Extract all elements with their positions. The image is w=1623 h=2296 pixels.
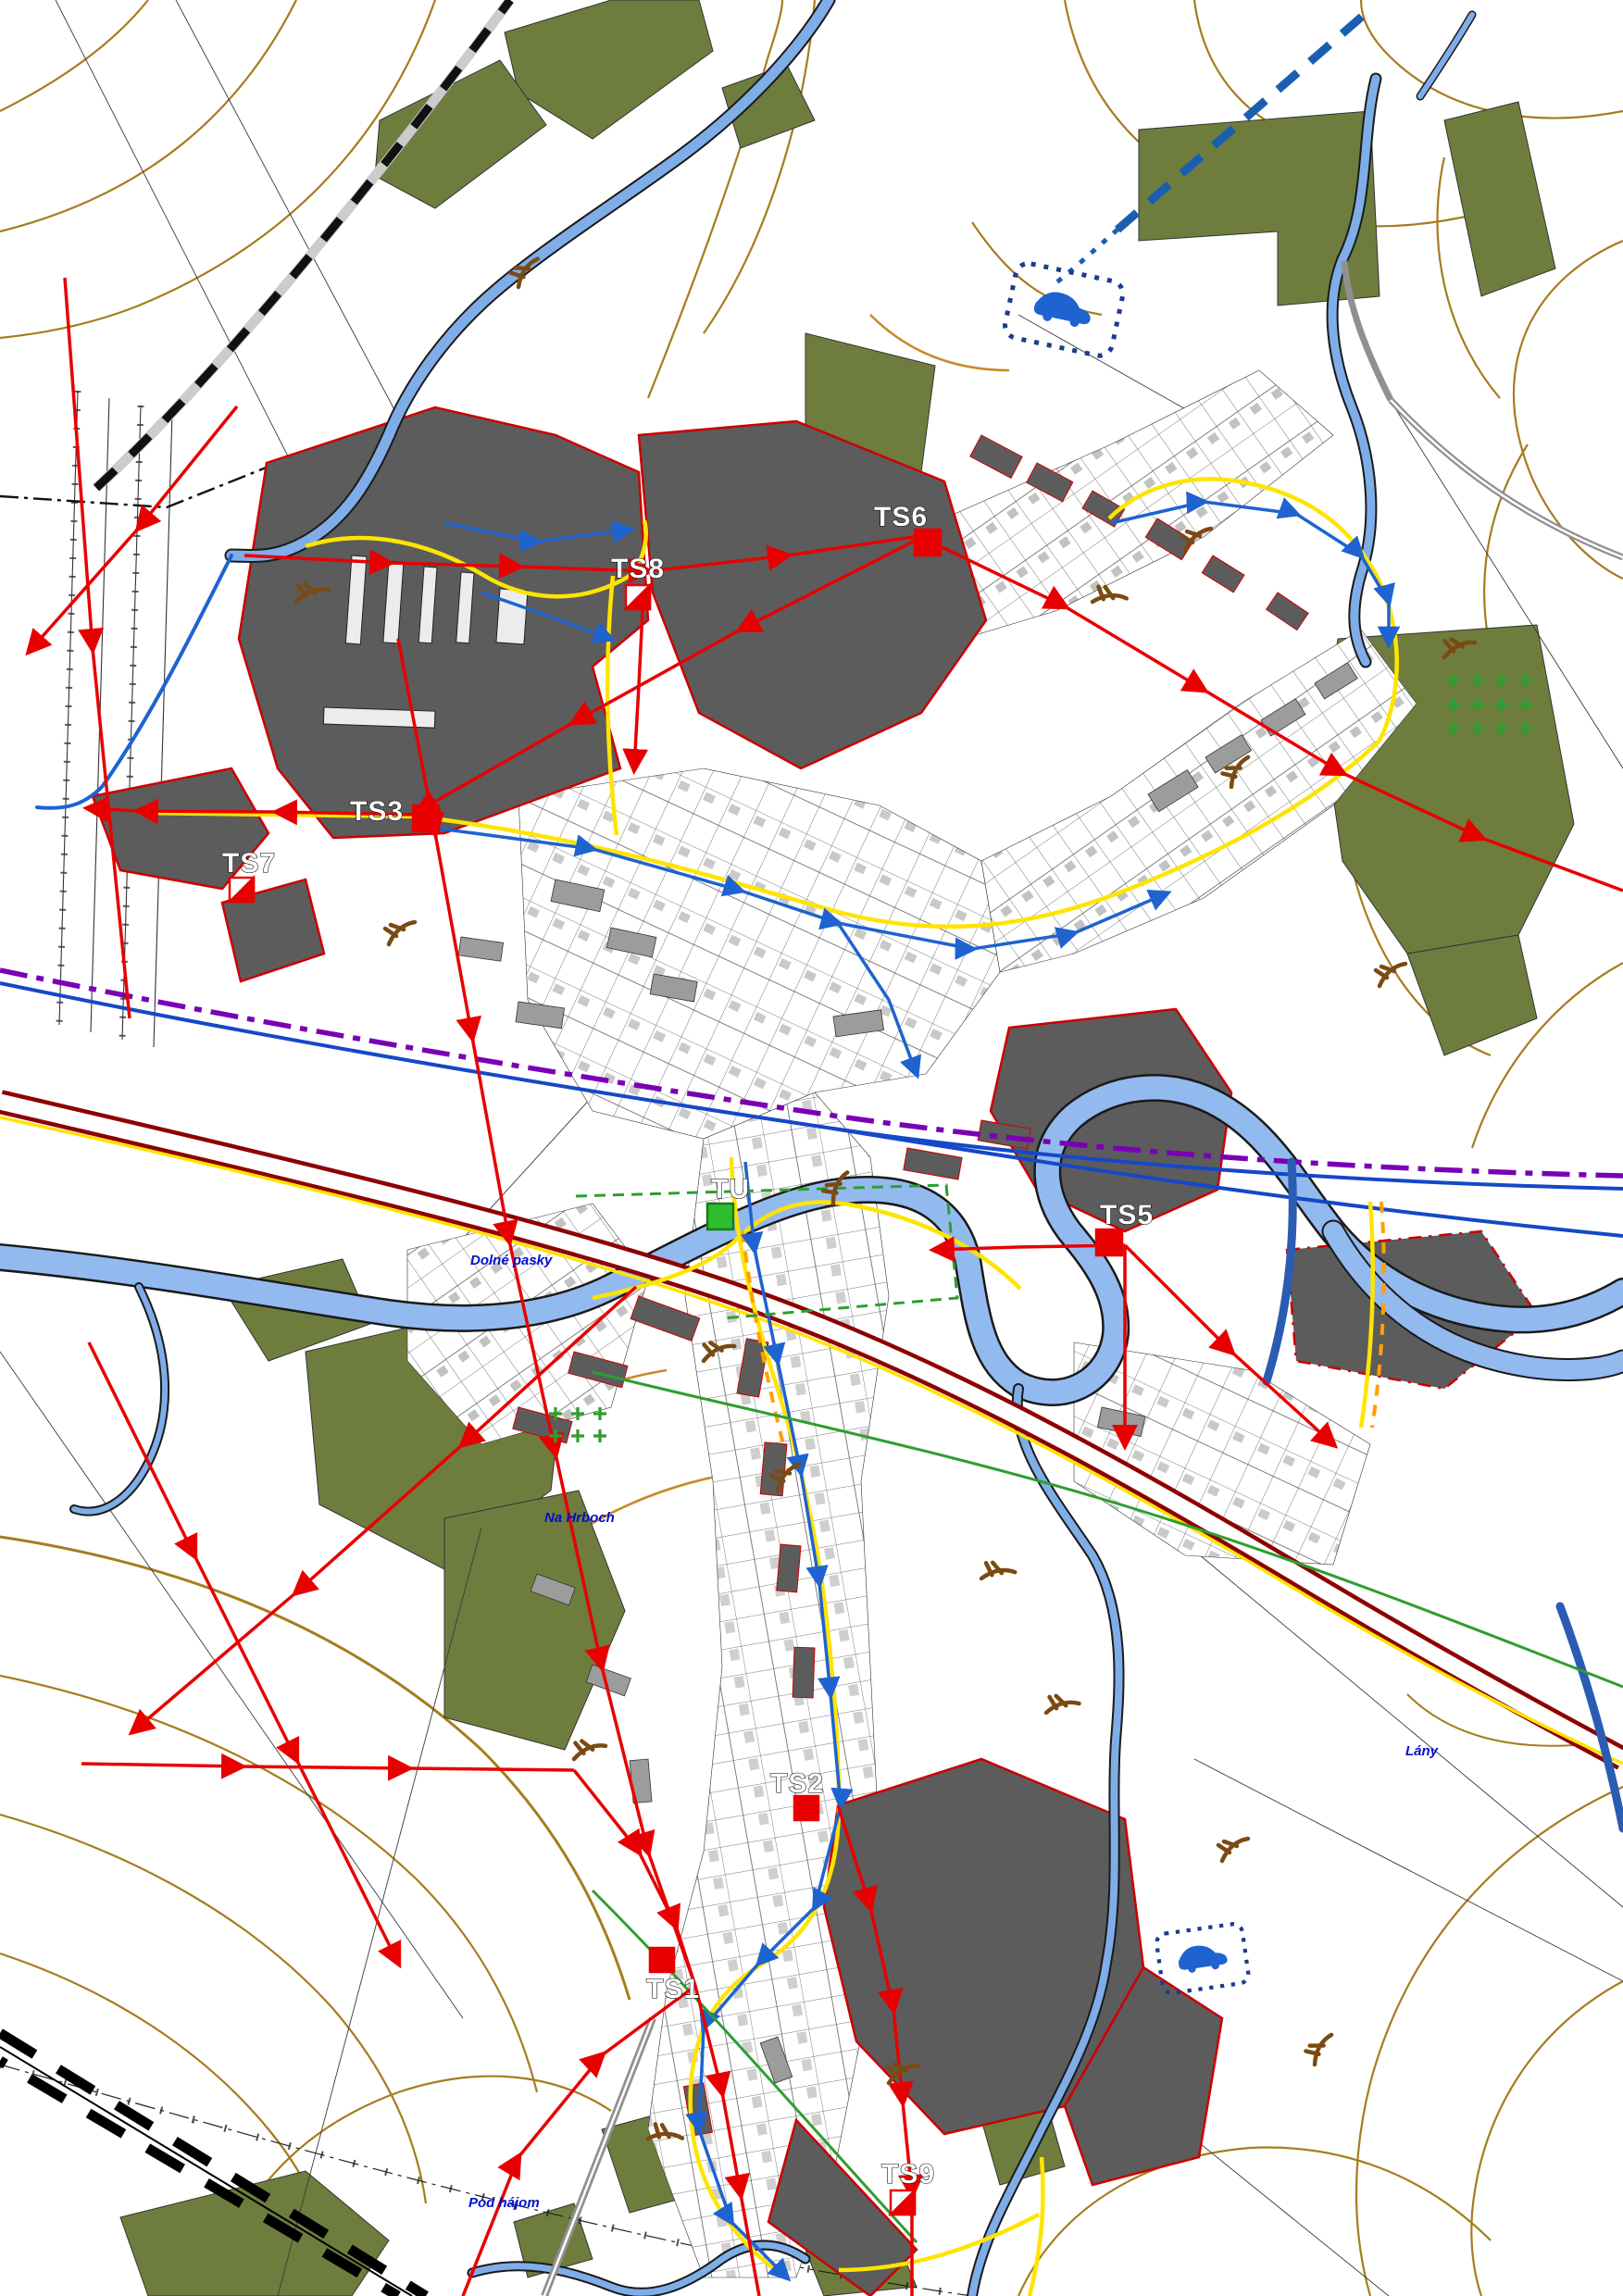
station-marker-tu — [707, 1204, 733, 1229]
map-viewport[interactable]: TS8 TS6 TS3 TS7 TS5 TU TS2 TS1 TS9 Dolné… — [0, 0, 1623, 2296]
station-marker-ts3 — [413, 805, 439, 831]
station-label-ts7: TS7 — [222, 848, 276, 879]
station-label-ts8: TS8 — [611, 554, 665, 584]
station-label-ts5: TS5 — [1100, 1200, 1154, 1230]
place-label-pod-hajom: Pod hájom — [468, 2195, 540, 2211]
station-label-ts2: TS2 — [770, 1768, 824, 1799]
place-label-na-hrboch: Na Hrboch — [544, 1510, 615, 1526]
station-marker-ts5 — [1096, 1229, 1122, 1255]
station-marker-ts6 — [915, 530, 941, 555]
station-marker-ts8 — [626, 585, 650, 609]
station-marker-ts1 — [650, 1948, 674, 1972]
place-label-dolne-pasky: Dolné pasky — [470, 1253, 553, 1268]
place-label-lany: Lány — [1405, 1743, 1439, 1759]
station-marker-ts2 — [794, 1796, 818, 1820]
station-marker-ts9 — [891, 2190, 915, 2215]
station-label-tu: TU — [711, 1174, 750, 1204]
station-label-ts1: TS1 — [646, 1974, 700, 2004]
station-marker-ts7 — [230, 878, 254, 902]
station-label-ts9: TS9 — [881, 2159, 935, 2190]
map-canvas[interactable]: TS8 TS6 TS3 TS7 TS5 TU TS2 TS1 TS9 Dolné… — [0, 0, 1623, 2296]
station-label-ts3: TS3 — [350, 796, 404, 827]
station-label-ts6: TS6 — [874, 502, 928, 532]
